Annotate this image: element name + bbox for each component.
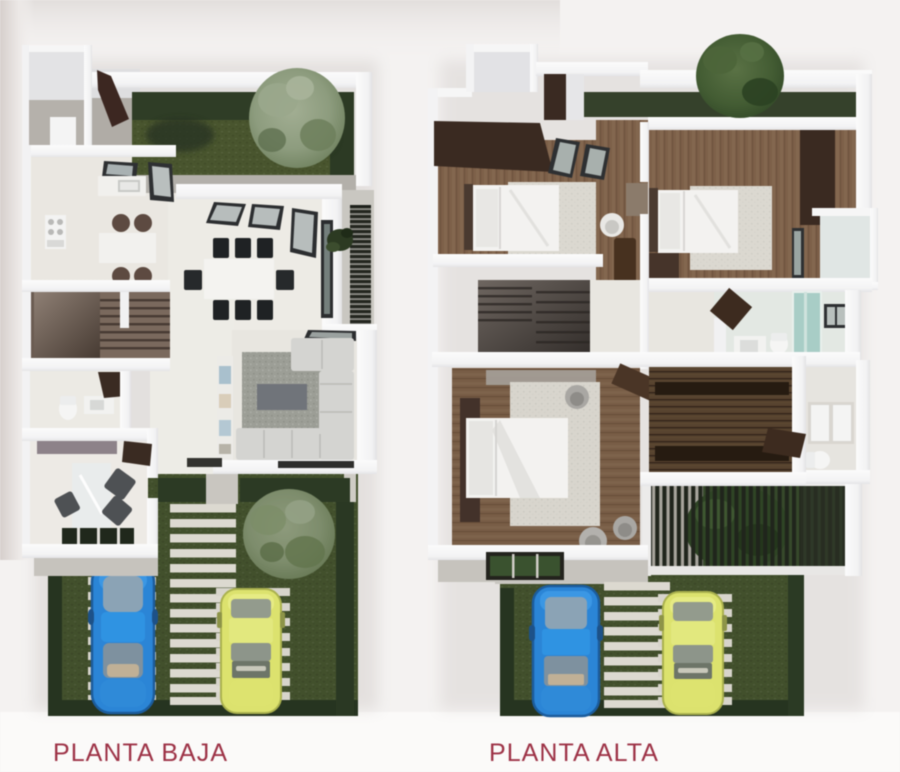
svg-text:PLANTA ALTA: PLANTA ALTA xyxy=(489,739,659,767)
svg-text:PLANTA BAJA: PLANTA BAJA xyxy=(53,739,228,767)
